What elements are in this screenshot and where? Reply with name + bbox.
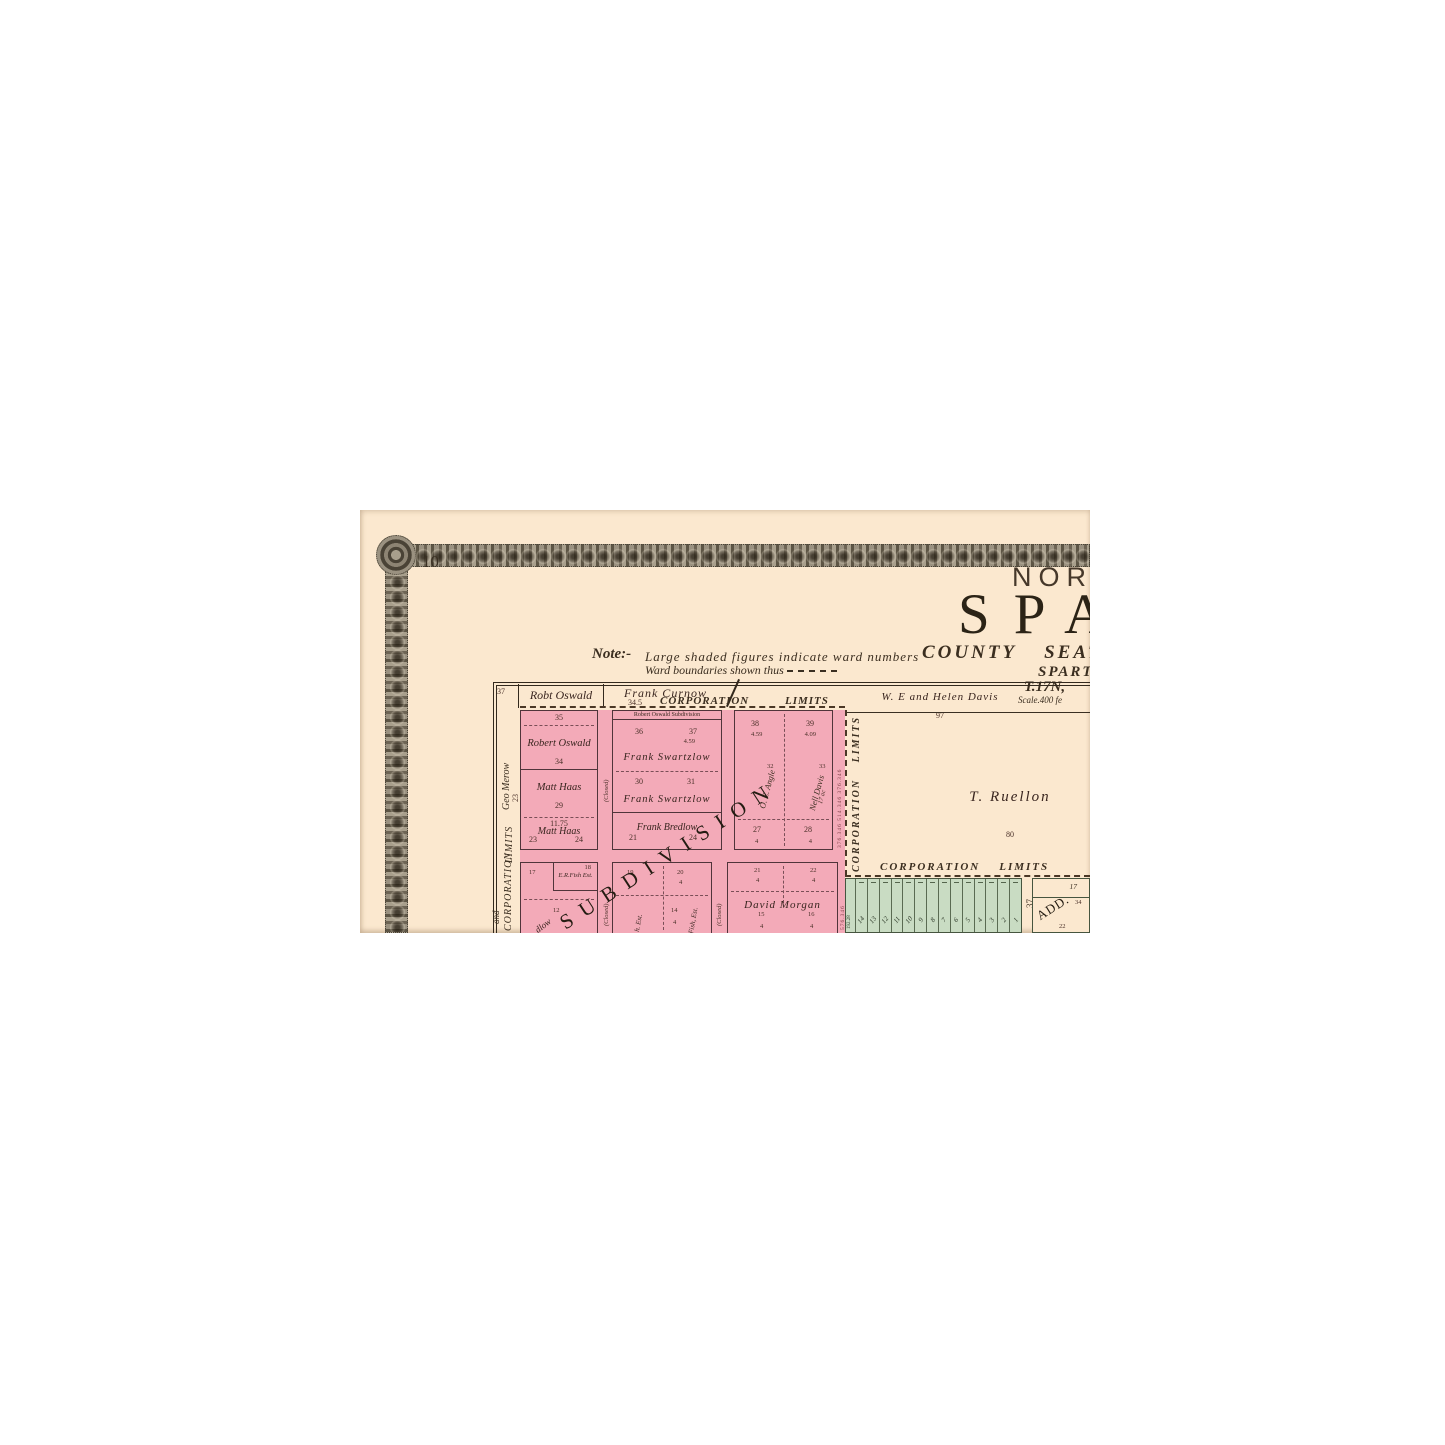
lot-line (663, 866, 664, 930)
map-paper: 10 NORTH SPA COUNTY SEAT O SPART T.17N, … (360, 510, 1090, 933)
block-oswald-haas: 35 Robert Oswald 34 Matt Haas 29 11.75 M… (520, 710, 598, 850)
lot-number: 37 (689, 727, 697, 736)
lot-number: 30 (635, 777, 643, 786)
lot-number: 17 (529, 869, 536, 876)
lot-line (613, 812, 721, 813)
lot-acreage: 4.59 (684, 738, 695, 745)
corporation-limits-label-bottom: CORPORATION LIMITS (880, 861, 1049, 873)
davis-parcel-bottom-line (845, 712, 1090, 713)
margin-owner-geo-merow: Geo Merow (501, 763, 512, 810)
lot-acreage: 4 (810, 923, 813, 930)
lot-number: 16 (808, 911, 815, 918)
addition-lot: 14 (856, 879, 868, 932)
corporation-limits-line-bottom (845, 875, 1090, 877)
lot-acreage: 4 (756, 877, 759, 884)
lot-number: 36 (635, 727, 643, 736)
lot-number: 32 (767, 763, 774, 770)
parcel-fish-est-1: h. Est. (633, 914, 644, 933)
owner-acres: 80 (1006, 830, 1014, 839)
lot-number: 21 (629, 833, 637, 842)
survey-numbers-row1: 376.346 514.346 376.346 (837, 769, 843, 848)
lot-number: 27 (753, 825, 761, 834)
addition-lot: 2 (998, 879, 1010, 932)
lot-line (524, 817, 594, 818)
lot-number: 34 (1075, 899, 1082, 906)
block-david-morgan: 21 4 22 4 David Morgan 15 16 4 4 (727, 862, 838, 933)
ward-boundary-dash-sample (787, 670, 837, 672)
decorative-border-left (385, 544, 408, 933)
addition-lot: 10 (903, 879, 915, 932)
parcel-er-fish: 18 E.R.Fish Est. (553, 863, 597, 891)
lot-line (738, 819, 829, 820)
lot-number: 22 (1059, 923, 1066, 930)
addition-name-block: 17 ADD. 34 22 (1032, 878, 1090, 933)
owner-strip-divider (518, 684, 519, 708)
corporation-limits-label: CORPORATION (660, 695, 749, 707)
margin-and-fragment: and (491, 911, 501, 925)
parcel-t-ruellon: T. Ruellon 80 (945, 788, 1075, 842)
addition-lot: 3 (986, 879, 998, 932)
lot-acreage: 4 (679, 879, 682, 886)
lot-acreage: 4 (755, 838, 758, 845)
closed-street-label: (Closed) (603, 780, 610, 802)
owner-name: Robt Oswald (530, 688, 592, 702)
lot-number: 33 (819, 763, 826, 770)
lot-acreage: 4 (809, 838, 812, 845)
lot-number: 35 (521, 713, 597, 722)
addition-edge-number: 192.28 (847, 915, 852, 929)
block-angle-davis: 38 4.59 39 4.09 O. E. Angle 32 Nell Davi… (734, 710, 833, 850)
decorative-border-top (385, 544, 1090, 567)
lot-acreage: 4 (673, 919, 676, 926)
owner-name-fragment: dlow (533, 916, 553, 933)
parcel-fish-est-2: Fish, Est. (687, 907, 700, 933)
corporation-limits-line-vertical (845, 710, 847, 876)
addition-edge-cell: 192.28 (846, 879, 856, 932)
owner-davis: W. E and Helen Davis 97 (855, 687, 1025, 723)
page-number: 10 (422, 552, 439, 572)
owner-name: W. E and Helen Davis (881, 691, 998, 703)
lot-number: 18 (585, 864, 592, 871)
lot-acreage: 4 (760, 923, 763, 930)
closed-street-label: (Closed) (716, 904, 723, 926)
addition-lot: 9 (915, 879, 927, 932)
lot-acreage: 4.59 (751, 731, 762, 738)
corporation-limits-label-vertical: CORPORATION LIMITS (851, 716, 862, 872)
lot-number: 24 (575, 835, 583, 844)
addition-lot: 13 (868, 879, 880, 932)
lot-number: 38 (751, 719, 759, 728)
map-title-subtitle: COUNTY SEAT O (922, 642, 1090, 664)
lot-number: 31 (687, 777, 695, 786)
addition-lot: 4 (975, 879, 987, 932)
parcel-frank-swartzlow-2: Frank Swartzlow (613, 789, 721, 807)
lot-number: 21 (754, 867, 761, 874)
map-title-city: SPA (958, 582, 1090, 647)
lot-line (731, 891, 834, 892)
corporation-limits-label: LIMITS (785, 695, 829, 707)
addition-lot: 1 (1010, 879, 1021, 932)
green-addition-strip: 192.28 14 13 12 11 10 9 8 7 6 5 4 3 2 1 (845, 878, 1022, 933)
owner-name: T. Ruellon (969, 789, 1050, 805)
lot-acreage: 4.09 (805, 731, 816, 738)
lot-number: 39 (806, 719, 814, 728)
lot-number: 15 (758, 911, 765, 918)
lot-number: 20 (677, 869, 684, 876)
decorative-border-corner-rosette (376, 535, 416, 575)
lot-line (616, 771, 718, 772)
lot-line (524, 725, 594, 726)
note-label: Note:- (592, 646, 631, 663)
owner-strip-divider (603, 684, 604, 708)
lot-line (521, 769, 597, 770)
parcel-robert-oswald: Robert Oswald 34 (521, 733, 597, 769)
lot-line (784, 714, 785, 846)
lot-number: 22 (810, 867, 817, 874)
lot-number: 23 (529, 835, 537, 844)
owner-name: E.R.Fish Est. (554, 872, 597, 879)
addition-lot: 11 (892, 879, 904, 932)
addition-lot: 8 (927, 879, 939, 932)
lot-number: 28 (804, 825, 812, 834)
scanned-atlas-sheet: 10 NORTH SPA COUNTY SEAT O SPART T.17N, … (0, 0, 1445, 1445)
lot-number: 14 (671, 907, 678, 914)
lot-acreage: 4 (812, 877, 815, 884)
margin-corner-number: 37 (497, 687, 505, 696)
margin-geo-merow-acres: 23 (511, 794, 520, 802)
parcel-david-morgan: David Morgan (728, 895, 837, 913)
addition-lot: 6 (951, 879, 963, 932)
parcel-frank-swartzlow-1: Frank Swartzlow (613, 747, 721, 765)
addition-lot: 5 (963, 879, 975, 932)
addition-lot: 12 (880, 879, 892, 932)
lot-number: 17 (1070, 882, 1078, 891)
margin-corporation-label: CORPORATION (503, 852, 514, 931)
note-line2: Ward boundaries shown thus (645, 663, 837, 678)
subdivision-banner: Robert Oswald Subdivision (613, 712, 721, 720)
addition-lot: 7 (939, 879, 951, 932)
